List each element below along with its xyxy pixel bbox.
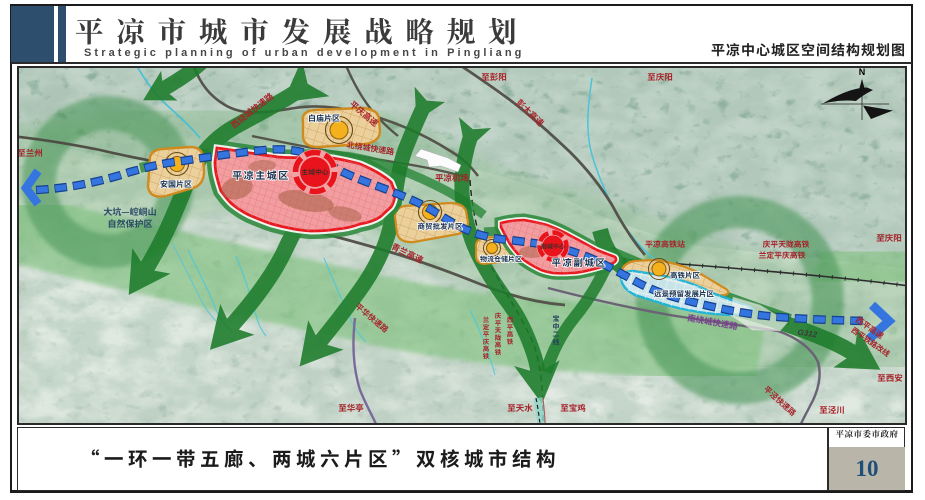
svg-text:至华亭: 至华亭: [338, 402, 364, 414]
svg-text:至西安: 至西安: [877, 372, 903, 384]
svg-text:白庙片区: 白庙片区: [308, 113, 340, 124]
svg-text:兰定平庆高铁: 兰定平庆高铁: [483, 314, 490, 360]
svg-text:商贸批发片区: 商贸批发片区: [418, 221, 463, 232]
svg-text:平凉高铁站: 平凉高铁站: [645, 239, 685, 250]
svg-text:主城中心: 主城中心: [301, 167, 328, 177]
svg-text:庆平天陇高铁: 庆平天陇高铁: [763, 239, 810, 250]
svg-text:至兰州: 至兰州: [17, 147, 43, 159]
svg-text:物流仓储片区: 物流仓储片区: [480, 255, 522, 265]
svg-text:至宝鸡: 至宝鸡: [560, 402, 586, 414]
svg-text:至泾川: 至泾川: [819, 404, 845, 416]
svg-text:副城中心: 副城中心: [541, 242, 565, 251]
svg-text:远景预留发展片区: 远景预留发展片区: [654, 289, 714, 300]
svg-text:西平高铁: 西平高铁: [507, 314, 514, 346]
svg-text:至庆阳: 至庆阳: [876, 232, 902, 244]
svg-text:至彭阳: 至彭阳: [481, 71, 507, 83]
svg-text:兰定平庆高铁: 兰定平庆高铁: [759, 250, 806, 261]
svg-text:自然保护区: 自然保护区: [107, 217, 152, 230]
svg-text:平凉副城区: 平凉副城区: [551, 255, 606, 269]
svg-text:至庆阳: 至庆阳: [647, 71, 673, 83]
svg-text:至天水: 至天水: [507, 402, 533, 414]
svg-text:庆平天陇高铁: 庆平天陇高铁: [495, 310, 502, 356]
svg-text:宝中二线: 宝中二线: [553, 314, 560, 348]
svg-text:安国片区: 安国片区: [160, 179, 192, 190]
svg-text:平凉主城区: 平凉主城区: [232, 167, 290, 182]
svg-text:平凉机场: 平凉机场: [435, 172, 470, 184]
svg-text:N: N: [859, 67, 866, 77]
svg-text:高铁片区: 高铁片区: [670, 270, 700, 281]
